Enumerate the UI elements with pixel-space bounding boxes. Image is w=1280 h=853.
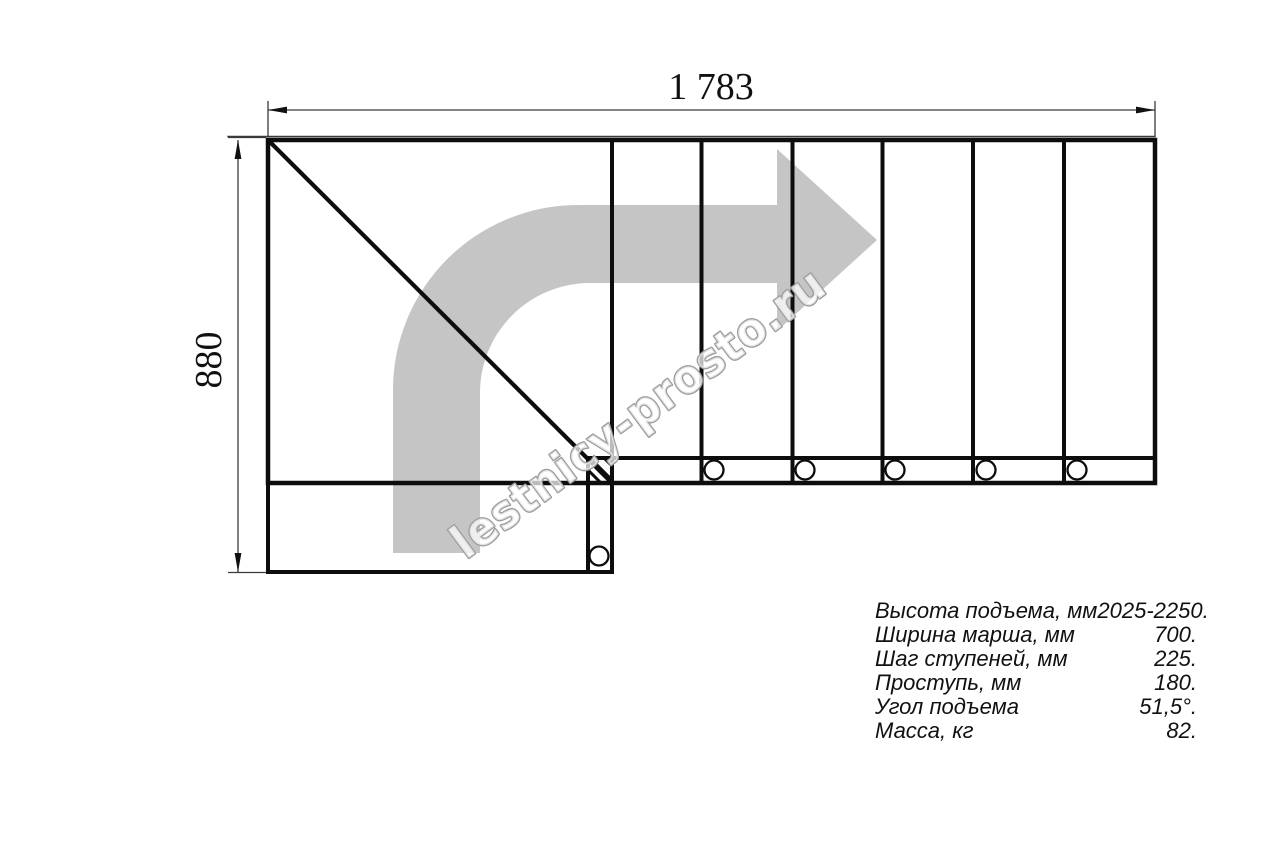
spec-label: Высота подъема, мм [875, 599, 1097, 623]
spec-row: Шаг ступеней, мм 225. [875, 647, 1197, 671]
baluster-circle [796, 461, 815, 480]
spec-value: 51,5°. [1139, 695, 1197, 719]
spec-row: Масса, кг 82. [875, 719, 1197, 743]
spec-row: Проступь, мм 180. [875, 671, 1197, 695]
spec-value: 700. [1154, 623, 1197, 647]
staircase-plan-canvas: 1 783 880 lestnicy-prosto.ru Высота подъ… [0, 0, 1280, 853]
dimension-label-top: 1 783 [668, 66, 754, 108]
spec-row: Высота подъема, мм 2025-2250. [875, 599, 1197, 623]
spec-label: Ширина марша, мм [875, 623, 1075, 647]
spec-value: 225. [1154, 647, 1197, 671]
dimension-arrowhead [268, 107, 287, 114]
baluster-circles [590, 461, 1087, 566]
dimension-arrowhead [235, 140, 242, 159]
spec-row: Ширина марша, мм 700. [875, 623, 1197, 647]
baluster-circle [590, 547, 609, 566]
spec-value: 2025-2250. [1097, 599, 1208, 623]
dimension-arrowhead [1136, 107, 1155, 114]
dimension-left [228, 138, 266, 573]
spec-label: Угол подъема [875, 695, 1019, 719]
dimension-arrowhead [235, 553, 242, 572]
baluster-circle [977, 461, 996, 480]
baluster-circle [705, 461, 724, 480]
dimension-label-left: 880 [188, 332, 230, 389]
baluster-circle [886, 461, 905, 480]
spec-label: Шаг ступеней, мм [875, 647, 1068, 671]
specs-table: Высота подъема, мм 2025-2250. Ширина мар… [875, 599, 1197, 743]
spec-row: Угол подъема 51,5°. [875, 695, 1197, 719]
direction-arrow-icon [393, 149, 877, 553]
baluster-circle [1068, 461, 1087, 480]
spec-value: 180. [1154, 671, 1197, 695]
spec-label: Масса, кг [875, 719, 974, 743]
spec-label: Проступь, мм [875, 671, 1021, 695]
spec-value: 82. [1166, 719, 1197, 743]
